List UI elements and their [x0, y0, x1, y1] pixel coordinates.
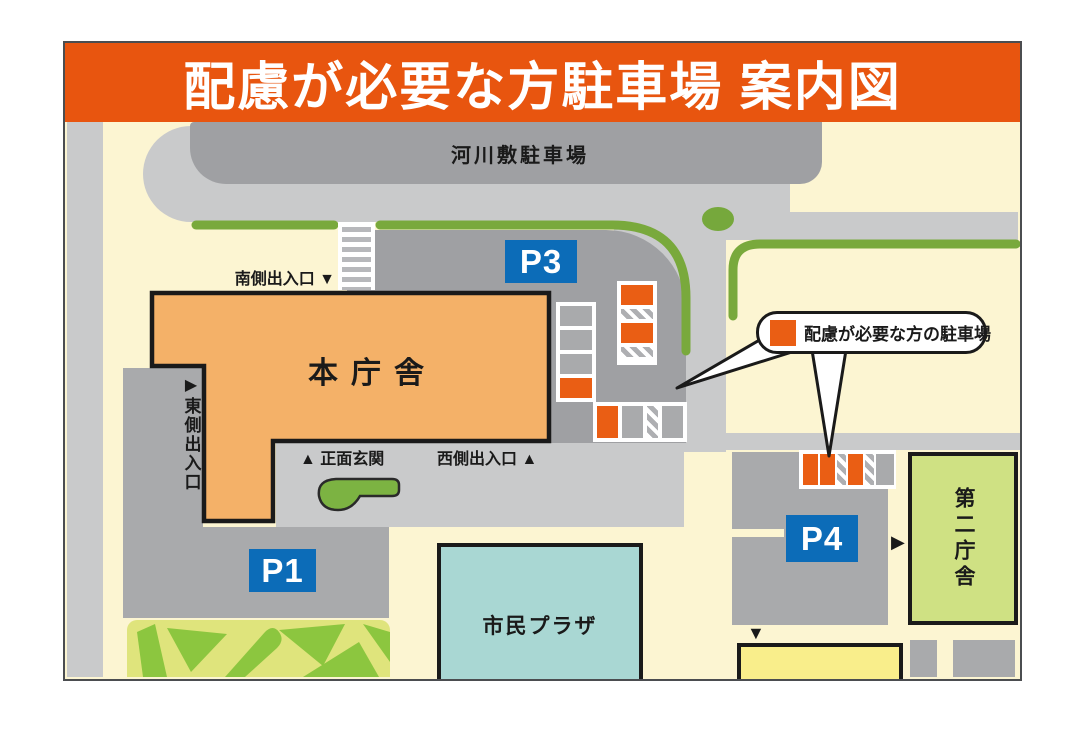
front-entrance-label: ▲ 正面玄関: [300, 445, 420, 469]
west-entrance-arrow: ▲: [521, 451, 537, 468]
parking-cell-hatch: [647, 406, 658, 438]
east-entrance-label: ▶ 東側出入口: [178, 375, 204, 492]
south-exit-arrow: ▼: [747, 623, 765, 644]
parking-cell-hatch: [621, 309, 653, 319]
parking-cell-gray: [622, 406, 643, 438]
parking-cell-hatch: [865, 454, 874, 485]
small-lot-1: [910, 640, 937, 677]
poster-canvas: 配慮が必要な方駐車場 案内図: [0, 0, 1080, 748]
tree-icon: [702, 207, 734, 231]
parking-cell-orange: [820, 454, 835, 485]
parking-cell-gray: [560, 330, 592, 350]
east-entrance-arrow: ▶: [185, 375, 197, 395]
parking-cell-hatch: [621, 347, 653, 357]
riverbed-parking-label: 河川敷駐車場: [400, 139, 640, 168]
parking-cell-orange: [848, 454, 863, 485]
front-entrance-arrow: ▲: [300, 451, 316, 468]
legend-callout: 配慮が必要な方の駐車場: [756, 311, 987, 354]
parking-cell-orange: [560, 378, 592, 398]
access-road: [684, 222, 726, 452]
parking-cell-hatch: [837, 454, 846, 485]
parking-cell-orange: [803, 454, 818, 485]
second-building: 第二庁舎: [908, 452, 1018, 625]
parking-cell-gray: [876, 454, 894, 485]
legend-color-swatch: [770, 320, 796, 346]
legend-label: 配慮が必要な方の駐車場: [804, 320, 991, 345]
south-entrance-label: 南側出入口 ▼: [160, 265, 335, 289]
small-lot-2: [953, 640, 1015, 677]
stairs-crossing: [338, 222, 375, 290]
second-building-arrow: ▶: [891, 532, 905, 553]
second-building-label: 第二庁舎: [948, 487, 978, 591]
p3-side-parking-strip: [556, 302, 596, 402]
park-area: [127, 620, 390, 677]
parking-cell-orange: [621, 285, 653, 305]
south-entrance-arrow: ▼: [319, 271, 335, 288]
parking-cell-gray: [662, 406, 683, 438]
p3-accessible-parking-strip: [617, 281, 657, 365]
badge-p4: P4: [786, 515, 858, 562]
parking-cell-orange: [597, 406, 618, 438]
parking-cell-gray: [560, 306, 592, 326]
south-building: [737, 643, 903, 681]
p4-lane-gap: [732, 529, 784, 537]
park-trees-icon: [127, 620, 390, 677]
citizen-plaza-label: 市民プラザ: [460, 610, 620, 640]
page-title: 配慮が必要な方駐車場 案内図: [183, 45, 901, 120]
p4-access-road: [722, 433, 1020, 450]
p3-south-parking-strip: [593, 402, 687, 442]
map-frame: 配慮が必要な方駐車場 案内図: [63, 41, 1022, 681]
header-banner: 配慮が必要な方駐車場 案内図: [65, 43, 1020, 122]
badge-p1: P1: [249, 549, 316, 592]
p4-accessible-parking-strip: [799, 450, 896, 489]
badge-p3: P3: [505, 240, 577, 283]
green-edge-right: [733, 244, 1016, 316]
west-entrance-label: 西側出入口 ▲: [437, 445, 567, 469]
main-building-label: 本庁舎: [280, 348, 465, 392]
west-road: [67, 122, 103, 677]
parking-cell-gray: [560, 354, 592, 374]
parking-cell-orange: [621, 323, 653, 343]
